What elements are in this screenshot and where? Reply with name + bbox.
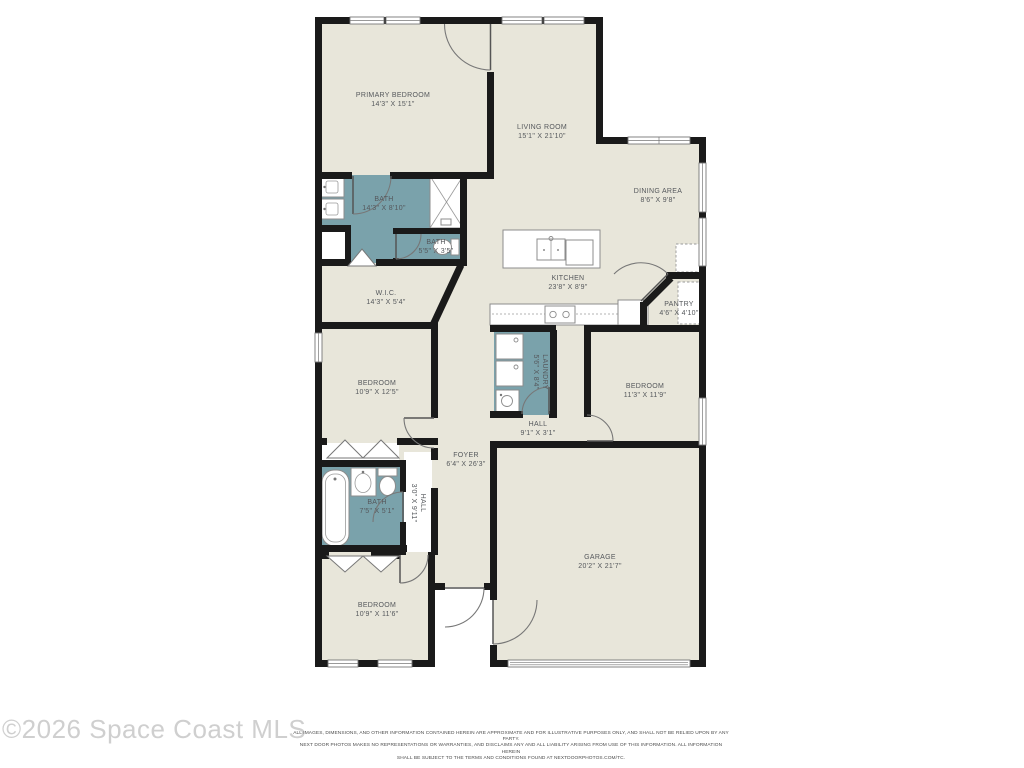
room-label-bedroom-1: BEDROOM 10'9" X 12'5": [355, 379, 398, 397]
window: [502, 17, 542, 24]
floor-plan-drawing: [0, 0, 1024, 768]
room-name: HALL: [418, 484, 427, 523]
room-label-foyer: FOYER 6'4" X 26'3": [446, 451, 485, 469]
room-dims: 10'9" X 11'6": [356, 610, 399, 619]
window: [699, 398, 706, 445]
room-name: W.I.C.: [366, 289, 405, 298]
room-name: GARAGE: [578, 553, 621, 562]
door-front-entry: [445, 588, 484, 627]
room-dims: 3'0" X 9'11": [409, 484, 418, 523]
room-label-bath-3: BATH 7'5" X 5'1": [359, 498, 394, 516]
room-dims: 9'1" X 3'1": [520, 429, 555, 438]
window: [699, 163, 706, 212]
window: [699, 218, 706, 266]
room-name: BATH: [359, 498, 394, 507]
room-name: DINING AREA: [634, 187, 682, 196]
room-dims: 14'3" X 5'4": [366, 298, 405, 307]
shower-icon: [430, 176, 463, 228]
room-label-primary-bath: BATH 14'3" X 8'10": [362, 195, 405, 213]
room-label-bedroom-2: BEDROOM 11'3" X 11'9": [624, 382, 666, 400]
garage-door: [508, 660, 690, 667]
room-name: BATH: [418, 238, 453, 247]
room-dims: 23'8" X 8'9": [548, 283, 587, 292]
mls-watermark: ©2026 Space Coast MLS: [2, 714, 306, 745]
room-name: PANTRY: [659, 300, 698, 309]
room-dims: 20'2" X 21'7": [578, 562, 621, 571]
room-name: BEDROOM: [355, 379, 398, 388]
window: [544, 17, 584, 24]
room-label-wic: W.I.C. 14'3" X 5'4": [366, 289, 405, 307]
disclaimer-line: SHALL BE SUBJECT TO THE TERMS AND CONDIT…: [292, 756, 730, 762]
room-label-garage: GARAGE 20'2" X 21'7": [578, 553, 621, 571]
room-label-kitchen: KITCHEN 23'8" X 8'9": [548, 274, 587, 292]
room-name: PRIMARY BEDROOM: [356, 91, 430, 100]
room-label-bath-2: BATH 5'5" X 3'5": [418, 238, 453, 256]
room-dims: 10'9" X 12'5": [355, 388, 398, 397]
window: [350, 17, 384, 24]
refrigerator-icon: [676, 244, 702, 272]
kitchen-counter: [490, 300, 648, 325]
room-name: BEDROOM: [356, 601, 399, 610]
room-name: BATH: [362, 195, 405, 204]
room-name: BEDROOM: [624, 382, 666, 391]
room-name: LIVING ROOM: [517, 123, 567, 132]
room-label-primary-bedroom: PRIMARY BEDROOM 14'3" X 15'1": [356, 91, 430, 109]
window: [628, 137, 690, 144]
disclaimer-line: NEXT DOOR PHOTOS MAKES NO REPRESENTATION…: [292, 743, 730, 755]
room-label-hall-2: HALL 3'0" X 9'11": [409, 484, 427, 523]
room-label-laundry: LAUNDRY 5'6" X 8'4": [531, 354, 549, 389]
room-dims: 7'5" X 5'1": [359, 507, 394, 516]
room-label-living-room: LIVING ROOM 15'1" X 21'10": [517, 123, 567, 141]
room-dims: 15'1" X 21'10": [517, 132, 567, 141]
disclaimer-text: ALL IMAGES, DIMENSIONS, AND OTHER INFORM…: [292, 731, 730, 762]
kitchen-island: [503, 230, 600, 268]
room-name: LAUNDRY: [540, 354, 549, 389]
window: [378, 660, 412, 667]
room-name: FOYER: [446, 451, 485, 460]
floor-plan-page: PRIMARY BEDROOM 14'3" X 15'1" LIVING ROO…: [0, 0, 1024, 768]
utility-sink-icon: [496, 390, 519, 412]
room-label-bedroom-3: BEDROOM 10'9" X 11'6": [356, 601, 399, 619]
room-dims: 6'4" X 26'3": [446, 460, 485, 469]
room-dims: 14'3" X 8'10": [362, 204, 405, 213]
room-label-hall: HALL 9'1" X 3'1": [520, 420, 555, 438]
room-label-dining-area: DINING AREA 8'6" X 9'8": [634, 187, 682, 205]
room-name: HALL: [520, 420, 555, 429]
room-dims: 14'3" X 15'1": [356, 100, 430, 109]
room-dims: 11'3" X 11'9": [624, 391, 666, 400]
room-label-pantry: PANTRY 4'6" X 4'10": [659, 300, 698, 318]
room-dims: 5'6" X 8'4": [531, 354, 540, 389]
window: [315, 333, 322, 362]
window: [386, 17, 420, 24]
sink-vanity-icon: [351, 468, 376, 496]
linen-closet-floor: [321, 228, 347, 262]
toilet-icon-2: [378, 468, 397, 496]
window: [328, 660, 358, 667]
bathtub-icon: [322, 470, 349, 546]
disclaimer-line: ALL IMAGES, DIMENSIONS, AND OTHER INFORM…: [292, 731, 730, 743]
room-dims: 4'6" X 4'10": [659, 309, 698, 318]
room-name: KITCHEN: [548, 274, 587, 283]
room-dims: 8'6" X 9'8": [634, 196, 682, 205]
room-dims: 5'5" X 3'5": [418, 247, 453, 256]
